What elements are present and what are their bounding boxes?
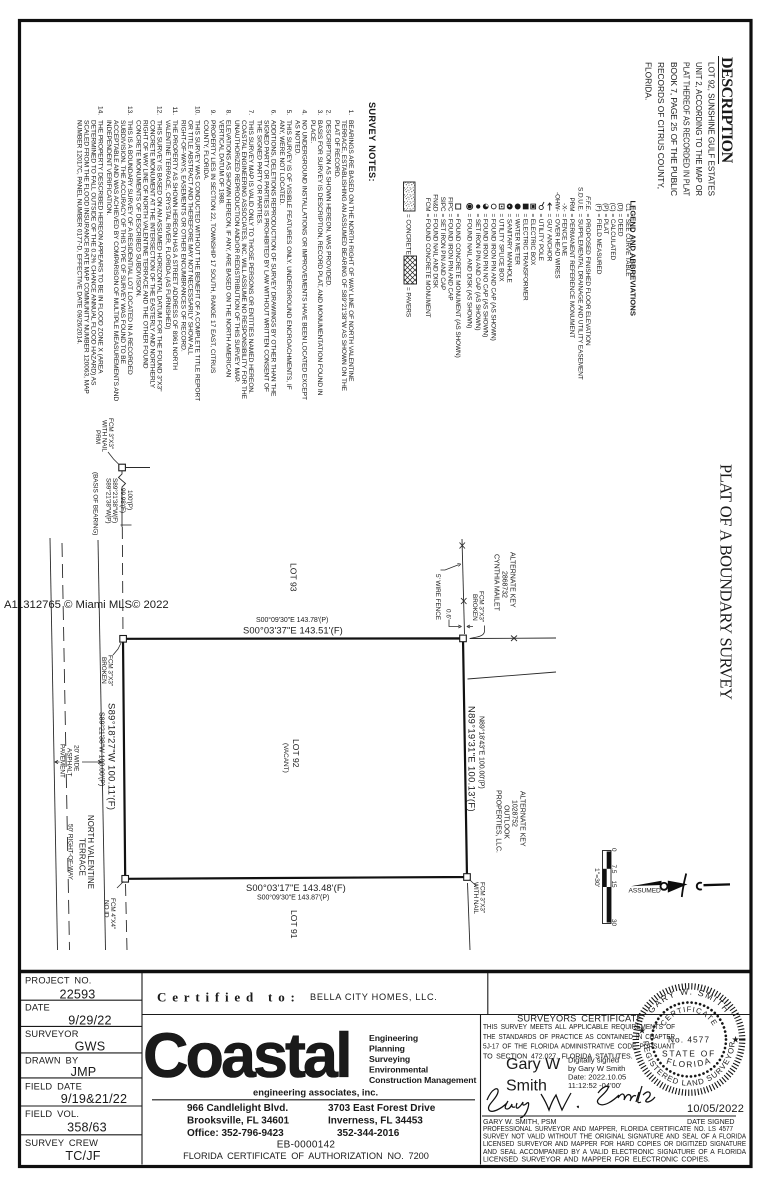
svg-text:0: 0 [610, 848, 617, 852]
svg-text:LOT 92, SUNSHINE GULF ESTATES: LOT 92, SUNSHINE GULF ESTATES [707, 62, 717, 196]
svg-text:SURVEYORS CERTIFICATE: SURVEYORS CERTIFICATE [517, 1014, 643, 1024]
svg-text:FIELD VOL.: FIELD VOL. [25, 1109, 79, 1119]
svg-text:SURVEYOR: SURVEYOR [25, 1029, 79, 1039]
svg-text:BROKEN: BROKEN [471, 594, 478, 621]
svg-text:= WATER METER: = WATER METER [514, 214, 521, 266]
svg-text:= UTILITY SPLICE BOX: = UTILITY SPLICE BOX [498, 214, 505, 283]
svg-text:LOT 92: LOT 92 [291, 739, 301, 768]
svg-text:= FOUND NAIL AND DISK: = FOUND NAIL AND DISK [432, 214, 439, 289]
svg-text:THIS SURVEY IS OF VISIBLE FEAT: THIS SURVEY IS OF VISIBLE FEATURES ONLY.… [285, 120, 292, 390]
svg-text:5' WIRE FENCE: 5' WIRE FENCE [434, 574, 441, 620]
svg-text:COASTAL ENGINEERING ASSOCIATES: COASTAL ENGINEERING ASSOCIATES, INC. WIL… [240, 120, 247, 400]
svg-text:N89°18'43"E 100.00'(P): N89°18'43"E 100.00'(P) [478, 716, 486, 789]
svg-text:PRM: PRM [568, 197, 575, 211]
svg-text:LOT 93: LOT 93 [289, 563, 299, 592]
svg-text:= OVER HEAD WIRES: = OVER HEAD WIRES [554, 214, 561, 279]
svg-text:11:12:52 -04'00': 11:12:52 -04'00' [568, 1081, 622, 1090]
svg-text:S00°03'17"E 143.48'(F): S00°03'17"E 143.48'(F) [246, 882, 346, 893]
svg-text:Surveying: Surveying [369, 1054, 410, 1064]
svg-text:THIS SURVEY IS BASED ON AN ASS: THIS SURVEY IS BASED ON AN ASSUMED HORIZ… [156, 120, 163, 392]
svg-text:20' WIDE: 20' WIDE [73, 745, 80, 771]
svg-text:PAVEMENT: PAVEMENT [59, 744, 66, 778]
svg-text:Construction Management: Construction Management [369, 1075, 476, 1085]
svg-text:S.D.U.E.: S.D.U.E. [577, 187, 584, 212]
svg-text:= PAVERS: = PAVERS [405, 287, 412, 317]
svg-text:★: ★ [732, 1035, 740, 1045]
svg-text:THE SIGNED PARTY OR PARTIES.: THE SIGNED PARTY OR PARTIES. [256, 120, 263, 225]
svg-text:= UTILITY POLE: = UTILITY POLE [537, 214, 544, 261]
svg-text:9/29/22: 9/29/22 [68, 1014, 111, 1028]
svg-text:Environmental: Environmental [369, 1065, 428, 1075]
svg-text:= GUY ANCHOR: = GUY ANCHOR [546, 214, 553, 262]
svg-text:C1: C1 [624, 203, 631, 212]
svg-text:22593: 22593 [59, 988, 95, 1002]
svg-text:9.: 9. [209, 110, 216, 116]
svg-text:N89°19'31"E 100.13'(F): N89°19'31"E 100.13'(F) [467, 706, 478, 812]
svg-text:= SET IRON PIN AND CAP: = SET IRON PIN AND CAP [439, 214, 446, 291]
svg-text:SIPC: SIPC [439, 197, 446, 212]
svg-text:S89°18'27"W 100.11'(F): S89°18'27"W 100.11'(F) [107, 703, 118, 810]
svg-text:PROPERTY LIES IN SECTION 22, T: PROPERTY LIES IN SECTION 22, TOWNSHIP 17… [209, 120, 216, 374]
svg-text:S00°09'30"E 143.87'(P): S00°09'30"E 143.87'(P) [257, 894, 329, 902]
svg-text:13.: 13. [126, 106, 133, 115]
svg-text:DESCRIPTION AS SHOWN HEREON, W: DESCRIPTION AS SHOWN HEREON, WAS PROVIDE… [325, 120, 332, 287]
svg-text:BOOK 7, PAGE 25 OF THE PUBLIC: BOOK 7, PAGE 25 OF THE PUBLIC [669, 62, 679, 196]
svg-text:THE PROPERTY DESCRIBED HEREON: THE PROPERTY DESCRIBED HEREON APPEARS TO… [97, 120, 104, 374]
svg-text:TERRACE, ESTABLISHING AN ASSUM: TERRACE, ESTABLISHING AN ASSUMED BEARING… [340, 120, 348, 392]
svg-text:PLACE.: PLACE. [309, 120, 316, 143]
svg-text:THIS SURVEY MAP IS VALID ONLY: THIS SURVEY MAP IS VALID ONLY TO THOSE P… [247, 120, 254, 394]
svg-text:(D): (D) [617, 203, 624, 212]
svg-text:NUMBER 12017C, PANEL NUMBER 01: NUMBER 12017C, PANEL NUMBER 0177-D, EFFE… [76, 120, 83, 345]
svg-text:5J-17 OF THE FLORIDA ADMINISTR: 5J-17 OF THE FLORIDA ADMINISTRATIVE CODE… [483, 1043, 676, 1051]
svg-text:PLAT OF RECORD.: PLAT OF RECORD. [333, 120, 340, 179]
svg-text:SIGNED PARTY OR PARTIES IS PRO: SIGNED PARTY OR PARTIES IS PROHIBITED BY… [263, 120, 270, 392]
svg-text:3.: 3. [316, 110, 323, 116]
svg-text:= SUPPLEMENTAL DRAINAGE AND UT: = SUPPLEMENTAL DRAINAGE AND UTILITY EASE… [577, 214, 584, 380]
svg-text:= ELECTRIC TRANSFORMER: = ELECTRIC TRANSFORMER [522, 214, 529, 301]
svg-text:Gary W: Gary W [506, 1056, 561, 1073]
svg-text:DESCRIPTION: DESCRIPTION [718, 57, 735, 164]
svg-text:SUBDIVISION. THE ACCURACY OF T: SUBDIVISION. THE ACCURACY OF THIS TYPE O… [119, 120, 126, 365]
svg-text:= PERMANENT REFERENCE MONUMENT: = PERMANENT REFERENCE MONUMENT [568, 214, 575, 339]
svg-text:Brooksville, FL 34601: Brooksville, FL 34601 [187, 1116, 290, 1127]
svg-text:Inverness, FL 34453: Inverness, FL 34453 [328, 1116, 423, 1127]
svg-text:358/63: 358/63 [67, 1121, 107, 1135]
svg-text:PLAT THEREOF AS RECORDED IN PL: PLAT THEREOF AS RECORDED IN PLAT [681, 62, 691, 196]
svg-text:Certified to:: Certified to: [157, 990, 301, 1005]
svg-text:= SANITARY MANHOLE: = SANITARY MANHOLE [506, 214, 513, 283]
svg-text:FIPC: FIPC [447, 197, 454, 212]
svg-text:SURVEY CREW: SURVEY CREW [25, 1138, 98, 1148]
svg-text:UNAUTHORIZED REPRODUCTION AND/: UNAUTHORIZED REPRODUCTION AND/OR REDISTR… [233, 120, 240, 383]
svg-text:= SEE CURVE TABLE: = SEE CURVE TABLE [624, 214, 631, 277]
svg-text:3703 East Forest Drive: 3703 East Forest Drive [328, 1103, 436, 1114]
svg-text:FCM: FCM [424, 198, 431, 212]
svg-text:BROKEN: BROKEN [100, 657, 107, 684]
svg-text:ALTERNATE KEY: ALTERNATE KEY [509, 552, 516, 608]
svg-text:BEARINGS ARE BASED ON THE NORT: BEARINGS ARE BASED ON THE NORTH RIGHT OF… [347, 120, 354, 382]
svg-text:ASSUMED: ASSUMED [629, 888, 662, 895]
svg-text:CONCRETE MONUMENTS OF DESCRIBE: CONCRETE MONUMENTS OF DESCRIBED SUBDIVIS… [135, 120, 142, 298]
svg-text:COUNTY, FLORIDA.: COUNTY, FLORIDA. [202, 120, 209, 180]
svg-text:THIS SURVEY WAS CONDUCTED WITH: THIS SURVEY WAS CONDUCTED WITHOUT THE BE… [194, 120, 201, 401]
svg-text:INDEPENDENT VERIFICATION.: INDEPENDENT VERIFICATION. [105, 120, 112, 215]
svg-text:(BASIS OF BEARING): (BASIS OF BEARING) [92, 472, 99, 535]
svg-text:= CONCRETE: = CONCRETE [405, 214, 412, 255]
svg-text:DATE: DATE [25, 1003, 50, 1013]
svg-text:= FOUND IRON PIN AND CAP: = FOUND IRON PIN AND CAP [447, 214, 454, 301]
svg-text:VERTICAL DATUM OF 1988.: VERTICAL DATUM OF 1988. [218, 120, 225, 205]
svg-text:PROJECT NO.: PROJECT NO. [25, 976, 92, 986]
svg-text:FLORIDA.: FLORIDA. [644, 62, 654, 100]
svg-text:= FOUND NAIL AND DISK (AS SHO: = FOUND NAIL AND DISK (AS SHOWN) [466, 214, 473, 329]
svg-text:6.: 6. [270, 110, 277, 116]
svg-text:30: 30 [610, 919, 617, 927]
svg-text:1.: 1. [347, 110, 354, 116]
svg-text:= DEED: = DEED [617, 214, 624, 237]
svg-text:engineering associates, inc.: engineering associates, inc. [253, 1087, 378, 1098]
svg-text:= CALCULATED: = CALCULATED [609, 214, 616, 261]
svg-text:-X-: -X- [561, 203, 568, 211]
svg-text:TERRACE: TERRACE [78, 838, 87, 876]
svg-text:DRAWN BY: DRAWN BY [25, 1056, 78, 1066]
svg-text:ANY, WERE NOT LOCATED.: ANY, WERE NOT LOCATED. [278, 120, 285, 205]
svg-text:SCALED FROM THE FLOOD INSURANC: SCALED FROM THE FLOOD INSURANCE RATE MAP… [83, 120, 90, 394]
svg-text:RECORDS OF CITRUS COUNTY,: RECORDS OF CITRUS COUNTY, [656, 62, 666, 189]
svg-text:EB-0000142: EB-0000142 [277, 1140, 336, 1151]
svg-text:11.: 11. [171, 106, 178, 115]
svg-text:1"=30': 1"=30' [593, 868, 600, 887]
svg-text:= SET IRON PIN AND CAP (AS SHO: = SET IRON PIN AND CAP (AS SHOWN) [474, 214, 481, 331]
svg-text:1028752: 1028752 [511, 800, 518, 827]
svg-text:RIGHT OF WAY LINE OF NORTH VAL: RIGHT OF WAY LINE OF NORTH VALENTINE TER… [142, 120, 149, 369]
svg-text:CONCRETE MONUMENT AT THE INTER: CONCRETE MONUMENT AT THE INTERSECTION OF… [149, 120, 156, 389]
svg-text:THE PROPERTY AS SHOWN HEREON H: THE PROPERTY AS SHOWN HEREON HAS A STREE… [171, 120, 178, 370]
svg-text:PLAT OF A BOUNDARY SURVEY: PLAT OF A BOUNDARY SURVEY [717, 464, 736, 700]
svg-text:THE STANDARDS OF PRACTICE AS C: THE STANDARDS OF PRACTICE AS CONTAINED I… [483, 1033, 675, 1041]
svg-text:(VACANT): (VACANT) [282, 743, 289, 773]
svg-text:S89°21'38"W(P): S89°21'38"W(P) [105, 478, 113, 523]
svg-text:FN&D: FN&D [432, 194, 439, 212]
svg-text:S00°09'30"E 143.78'(P): S00°09'30"E 143.78'(P) [256, 616, 328, 624]
svg-text:PROPERTIES, LLC.: PROPERTIES, LLC. [495, 790, 502, 853]
svg-text:Smith: Smith [506, 1078, 547, 1095]
svg-text:ACCEPTABLE AND WAS ACHIEVED BY: ACCEPTABLE AND WAS ACHIEVED BY COMPARISO… [112, 120, 119, 401]
svg-text:8.: 8. [225, 110, 232, 116]
svg-text:THIS IS A BOUNDARY SURVEY OF A: THIS IS A BOUNDARY SURVEY OF A RESIDENTI… [126, 120, 133, 375]
svg-text:14.: 14. [97, 106, 104, 115]
svg-text:BELLA CITY HOMES, LLC.: BELLA CITY HOMES, LLC. [310, 992, 438, 1002]
svg-text:= FENCE LINE: = FENCE LINE [561, 214, 568, 257]
svg-text:TC/JF: TC/JF [65, 1149, 100, 1163]
svg-text:THIS SURVEY MEETS ALL APPLICAB: THIS SURVEY MEETS ALL APPLICABLE REQUIRE… [483, 1023, 676, 1031]
svg-text:AS NOTED.: AS NOTED. [294, 120, 301, 155]
svg-text:BASIS FOR SURVEY IS DESCRIPTIO: BASIS FOR SURVEY IS DESCRIPTION, RECORD … [316, 120, 323, 396]
svg-text:LOT 91: LOT 91 [289, 910, 299, 939]
svg-text:= PROPOSED FINISHED FLOOR ELEV: = PROPOSED FINISHED FLOOR ELEVATION [584, 214, 591, 347]
svg-text:2868732: 2868732 [501, 571, 508, 598]
svg-text:GWS: GWS [75, 1040, 106, 1054]
svg-text:99.98'(F): 99.98'(F) [119, 488, 126, 513]
svg-text:2.: 2. [325, 110, 332, 116]
svg-text:4.: 4. [301, 110, 308, 116]
svg-text:= FOUND CONCRETE MONUMENT: = FOUND CONCRETE MONUMENT [424, 214, 431, 318]
svg-text:A11312765 © Miami MLS© 2022: A11312765 © Miami MLS© 2022 [4, 599, 169, 611]
svg-text:WITH NAIL: WITH NAIL [472, 882, 479, 914]
svg-text:(P): (P) [602, 203, 609, 211]
svg-text:Coastal: Coastal [143, 1021, 350, 1091]
svg-text:12.: 12. [156, 106, 163, 115]
svg-text:966 Candlelight Blvd.: 966 Candlelight Blvd. [187, 1103, 288, 1114]
svg-text:DETERMINED TO FALL OUTSIDE OF: DETERMINED TO FALL OUTSIDE OF THE 0.2% C… [90, 120, 97, 386]
svg-text:CYNTHIA MAILET: CYNTHIA MAILET [493, 554, 500, 612]
svg-text:0.6': 0.6' [445, 609, 452, 619]
svg-text:UNIT 2, ACCORDING TO THE MAP O: UNIT 2, ACCORDING TO THE MAP OR [694, 62, 704, 196]
svg-text:RIGHT-OF-WAYS, EASEMENTS OR OT: RIGHT-OF-WAYS, EASEMENTS OR OTHER ENCUMB… [180, 120, 187, 352]
svg-text:NO UNDERGROUND INSTALLATIONS O: NO UNDERGROUND INSTALLATIONS OR IMPROVEM… [301, 120, 308, 400]
svg-text:(F): (F) [595, 203, 602, 211]
svg-text:OUTLOOK: OUTLOOK [503, 805, 510, 839]
svg-text:SURVEY NOTES:: SURVEY NOTES: [367, 102, 377, 182]
svg-text:100'(P): 100'(P) [126, 490, 133, 510]
svg-text:ADDITIONS, DELETIONS REPRODUCT: ADDITIONS, DELETIONS REPRODUCTION OF SUR… [270, 120, 277, 397]
svg-text:7.: 7. [247, 110, 254, 116]
svg-text:= FOUND CONCRETE MONUMENT (AS: = FOUND CONCRETE MONUMENT (AS SHOWN) [454, 214, 461, 358]
svg-text:FIELD DATE: FIELD DATE [25, 1082, 82, 1092]
svg-text:S89°21'38"W 100.00'(P): S89°21'38"W 100.00'(P) [98, 712, 106, 786]
svg-text:OR TITLE ABSTRACT AND THEREFOR: OR TITLE ABSTRACT AND THEREFORE MAY NOT … [187, 120, 194, 355]
svg-text:ASPHALT: ASPHALT [66, 748, 73, 776]
svg-text:F.F.E.: F.F.E. [584, 196, 591, 211]
svg-text:352-344-2016: 352-344-2016 [337, 1128, 400, 1139]
svg-text:-OHW-: -OHW- [554, 192, 561, 212]
svg-text:VALENTINE TERRACE, CRYSTAL RIV: VALENTINE TERRACE, CRYSTAL RIVER, FLORID… [164, 120, 171, 329]
svg-text:NO ID: NO ID [103, 900, 110, 918]
svg-text:PRM: PRM [94, 430, 101, 444]
svg-text:= FIELD MEASURED: = FIELD MEASURED [595, 214, 602, 275]
svg-text:= FOUND IRON PIN AND CAP (AS S: = FOUND IRON PIN AND CAP (AS SHOWN) [490, 214, 497, 341]
svg-text:9/19&21/22: 9/19&21/22 [61, 1092, 127, 1106]
svg-text:ALTERNATE KEY: ALTERNATE KEY [519, 791, 526, 847]
svg-text:S00°03'37"E 143.51'(F): S00°03'37"E 143.51'(F) [243, 625, 343, 636]
svg-text:Engineering: Engineering [369, 1033, 418, 1043]
svg-text:= PLAT: = PLAT [602, 214, 609, 235]
svg-text:Office: 352-796-9423: Office: 352-796-9423 [187, 1128, 284, 1139]
svg-text:50' RIGHT-OF-WAY: 50' RIGHT-OF-WAY [67, 824, 74, 881]
svg-text:Planning: Planning [369, 1044, 405, 1054]
svg-text:10.: 10. [194, 106, 201, 115]
svg-text:FLORIDA CERTIFICATE OF AUTHORI: FLORIDA CERTIFICATE OF AUTHORIZATION NO.… [183, 1151, 429, 1161]
svg-text:10/05/2022: 10/05/2022 [687, 1103, 744, 1115]
svg-text:ELEVATIONS AS SHOWN HEREON, IF: ELEVATIONS AS SHOWN HEREON, IF ANY, ARE … [225, 120, 232, 378]
svg-text:JMP: JMP [71, 1065, 97, 1079]
svg-text:(C): (C) [609, 203, 616, 212]
svg-text:15: 15 [610, 881, 617, 889]
svg-text:LICENSED SURVEYOR AND MAPPER F: LICENSED SURVEYOR AND MAPPER FOR ELECTRO… [483, 1155, 710, 1163]
svg-text:= FOUND IRON PIN NO CAP (AS SH: = FOUND IRON PIN NO CAP (AS SHOWN) [482, 214, 489, 338]
svg-text:7.5: 7.5 [610, 865, 617, 874]
svg-text:5.: 5. [285, 110, 292, 116]
svg-text:= ELECTRIC BOX: = ELECTRIC BOX [529, 214, 536, 266]
